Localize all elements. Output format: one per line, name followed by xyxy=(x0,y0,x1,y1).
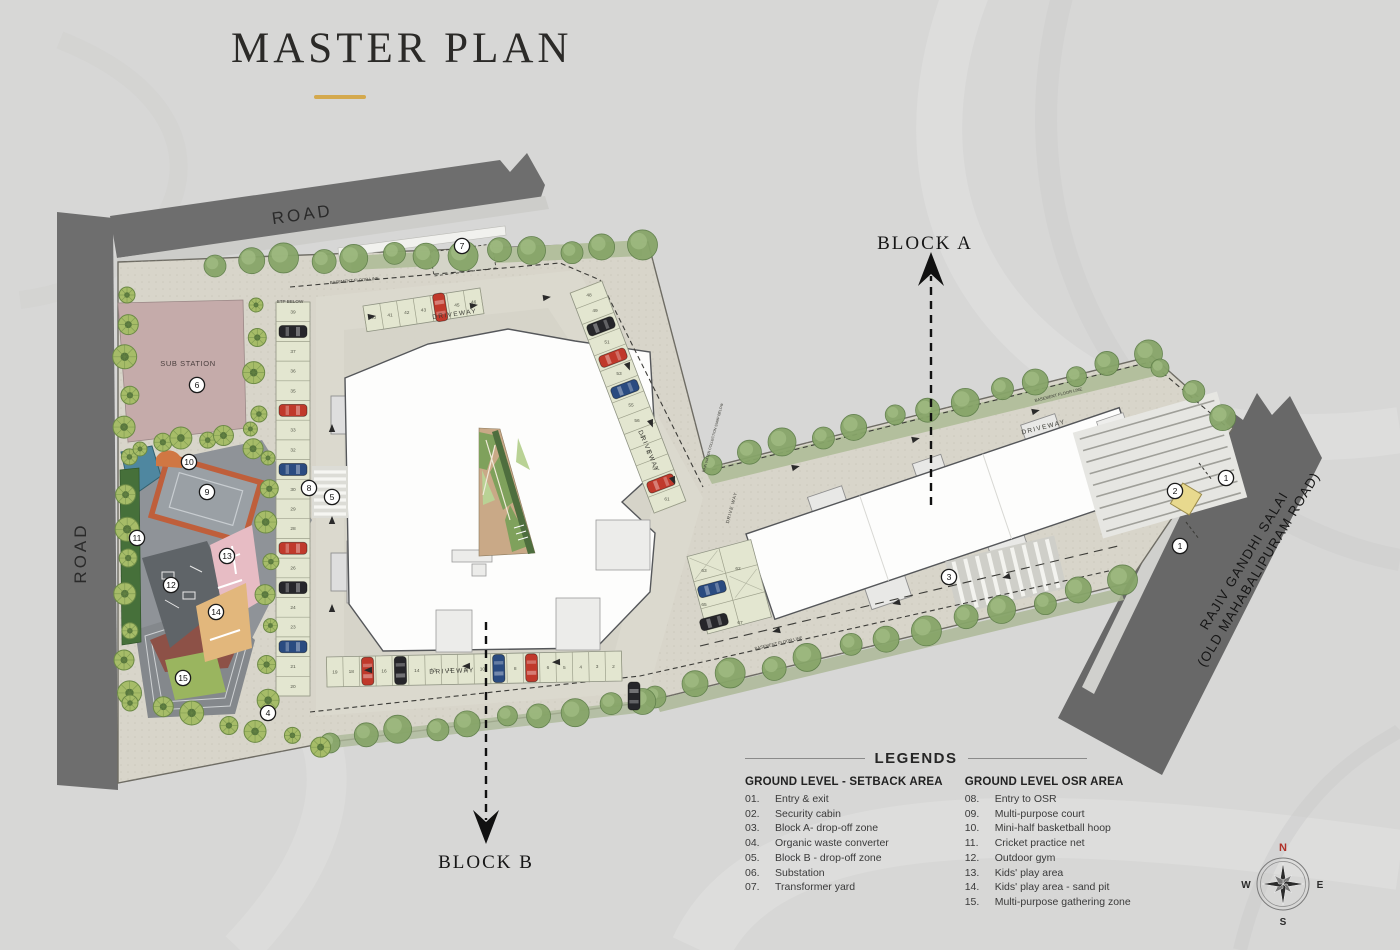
parking-stall-number: 3 xyxy=(596,664,599,670)
plan-marker-number: 1 xyxy=(1178,541,1183,551)
parked-car xyxy=(279,582,307,594)
legend-item-number: 02. xyxy=(745,807,769,822)
legend-item-label: Block A- drop-off zone xyxy=(775,821,943,836)
plan-marker: 7 xyxy=(454,238,469,253)
master-plan-page: ROAD ROAD RAJIV GANDHI SALAI (OLD MAHABA… xyxy=(0,0,1400,950)
legend-item-number: 11. xyxy=(965,836,989,851)
plan-marker: 3 xyxy=(941,569,956,584)
compass-north: N xyxy=(1279,842,1287,854)
plan-marker: 10 xyxy=(181,454,196,469)
block-b-label: BLOCK B xyxy=(438,852,534,873)
parked-car xyxy=(279,542,307,554)
parking-stall-number: 67 xyxy=(737,620,743,626)
plan-marker: 1 xyxy=(1218,470,1233,485)
title-underline xyxy=(314,95,366,99)
legend-item: 14.Kids' play area - sand pit xyxy=(965,880,1131,895)
parking-stall-number: 42 xyxy=(404,310,410,316)
plan-marker-number: 15 xyxy=(178,673,188,683)
page-title: MASTER PLAN xyxy=(231,24,572,73)
legend-column-osr: GROUND LEVEL OSR AREA 08.Entry to OSR09.… xyxy=(965,776,1131,910)
parked-car xyxy=(394,656,407,684)
plan-marker: 5 xyxy=(324,489,339,504)
substation-label: SUB STATION xyxy=(160,359,216,368)
parking-stall-number: 5 xyxy=(563,665,566,671)
legend-columns: GROUND LEVEL - SETBACK AREA 01.Entry & e… xyxy=(745,776,1087,910)
plan-marker: 8 xyxy=(301,480,316,495)
parking-stall-number: 33 xyxy=(290,428,296,434)
legend-item-label: Substation xyxy=(775,866,943,881)
legend-item-number: 09. xyxy=(965,807,989,822)
plan-marker: 14 xyxy=(208,604,223,619)
parked-car xyxy=(279,404,307,416)
legend-item: 08.Entry to OSR xyxy=(965,792,1131,807)
plan-marker-number: 10 xyxy=(184,457,194,467)
parking-stall-number: 49 xyxy=(592,308,598,314)
plan-marker: 4 xyxy=(260,705,275,720)
parking-stall-number: 6 xyxy=(547,665,550,671)
legend-item-number: 07. xyxy=(745,880,769,895)
legend-item-number: 03. xyxy=(745,821,769,836)
legend-item-label: Outdoor gym xyxy=(995,851,1131,866)
plan-marker-number: 13 xyxy=(222,551,232,561)
plan-marker-number: 9 xyxy=(205,487,210,497)
parking-stall-number: 45 xyxy=(454,302,460,308)
parking-stall-number: 14 xyxy=(414,668,420,674)
parking-stall-number: 32 xyxy=(290,447,296,453)
parking-stall-number: 51 xyxy=(604,340,610,346)
legend-item: 12.Outdoor gym xyxy=(965,851,1131,866)
left-road xyxy=(57,212,118,790)
legend-rule-right xyxy=(968,758,1088,759)
parking-stall-number: 4 xyxy=(579,664,582,670)
parking-stall-number: 37 xyxy=(290,349,296,355)
plan-marker-number: 11 xyxy=(133,533,142,543)
legend-item-label: Cricket practice net xyxy=(995,836,1131,851)
legend-item-number: 04. xyxy=(745,836,769,851)
parking-stall-number: 26 xyxy=(290,566,296,572)
parking-stall-number: 36 xyxy=(290,369,296,375)
legend-item-number: 13. xyxy=(965,866,989,881)
legend-item: 03.Block A- drop-off zone xyxy=(745,821,943,836)
parking-stall-number: 24 xyxy=(290,605,296,611)
legend-item-number: 15. xyxy=(965,895,989,910)
plan-marker-number: 1 xyxy=(1224,473,1229,483)
parked-car xyxy=(628,682,640,710)
site-plan-drawing: ROAD ROAD RAJIV GANDHI SALAI (OLD MAHABA… xyxy=(0,0,1400,950)
plan-marker: 6 xyxy=(189,377,204,392)
parking-stall-number: 35 xyxy=(290,388,296,394)
legend-item-label: Multi-purpose court xyxy=(995,807,1131,822)
parked-car xyxy=(525,654,538,682)
parking-stall-number: 2 xyxy=(612,664,615,670)
left-road-label: ROAD xyxy=(71,522,90,583)
legend-title-row: LEGENDS xyxy=(745,750,1087,767)
plan-marker-number: 7 xyxy=(460,241,465,251)
legend-rule-left xyxy=(745,758,865,759)
legend-item-label: Block B - drop-off zone xyxy=(775,851,943,866)
legend-item-number: 12. xyxy=(965,851,989,866)
legend-item: 05.Block B - drop-off zone xyxy=(745,851,943,866)
legend-item-number: 10. xyxy=(965,821,989,836)
legend-item-label: Entry to OSR xyxy=(995,792,1131,807)
plan-marker-number: 14 xyxy=(211,607,221,617)
plan-marker: 9 xyxy=(199,484,214,499)
plan-marker: 13 xyxy=(219,548,234,563)
legend-title: LEGENDS xyxy=(875,750,958,767)
parking-stall-number: 8 xyxy=(514,666,517,672)
parking-stall-number: 65 xyxy=(701,602,707,608)
parking-stall-number: 29 xyxy=(290,506,296,512)
legend-item-number: 14. xyxy=(965,880,989,895)
legend-item: 13.Kids' play area xyxy=(965,866,1131,881)
parking-stall-number: 16 xyxy=(381,668,387,674)
parked-car xyxy=(492,654,505,682)
parking-stall-number: 53 xyxy=(616,371,622,377)
plan-marker: 12 xyxy=(163,577,178,592)
parking-stall-number: 55 xyxy=(628,402,634,408)
legend-item-label: Security cabin xyxy=(775,807,943,822)
legend-item-label: Transformer yard xyxy=(775,880,943,895)
legend-item: 09.Multi-purpose court xyxy=(965,807,1131,822)
plan-marker-number: 4 xyxy=(266,708,271,718)
legend-item: 11.Cricket practice net xyxy=(965,836,1131,851)
parking-stall-number: 48 xyxy=(586,292,592,298)
legend-header: GROUND LEVEL OSR AREA xyxy=(965,776,1131,788)
parking-stall-number: 43 xyxy=(421,307,427,313)
legend-item-number: 08. xyxy=(965,792,989,807)
legend-item-label: Multi-purpose gathering zone xyxy=(995,895,1131,910)
plan-marker: 15 xyxy=(175,670,190,685)
legend-item-label: Kids' play area - sand pit xyxy=(995,880,1131,895)
parking-stall-number: 61 xyxy=(664,497,670,503)
parked-car xyxy=(279,641,307,653)
compass-east: E xyxy=(1317,880,1324,891)
plan-marker-number: 2 xyxy=(1173,486,1178,496)
legend-item: 06.Substation xyxy=(745,866,943,881)
legend-column-setback: GROUND LEVEL - SETBACK AREA 01.Entry & e… xyxy=(745,776,943,910)
parking-stall-number: 30 xyxy=(290,487,296,493)
legend-item-number: 05. xyxy=(745,851,769,866)
legend-item-label: Organic waste converter xyxy=(775,836,943,851)
parking-stall-number: 28 xyxy=(290,526,296,532)
plan-marker-number: 8 xyxy=(307,483,312,493)
parking-stall-number: 23 xyxy=(290,625,296,631)
block-a-label: BLOCK A xyxy=(877,233,973,254)
parking-stall-number: 41 xyxy=(387,313,393,319)
legend-item: 01.Entry & exit xyxy=(745,792,943,807)
plan-marker-number: 12 xyxy=(166,580,176,590)
compass-south: S xyxy=(1280,917,1287,928)
compass-west: W xyxy=(1241,880,1251,891)
parking-stall-number: 20 xyxy=(290,684,296,690)
legend-item: 15.Multi-purpose gathering zone xyxy=(965,895,1131,910)
plan-marker: 2 xyxy=(1167,483,1182,498)
parked-car xyxy=(279,463,307,475)
parking-stall-number: 10 xyxy=(480,666,486,672)
parking-stall-number: 56 xyxy=(634,418,640,424)
plan-marker-number: 3 xyxy=(947,572,952,582)
parking-stall-number: 62 xyxy=(735,566,741,572)
legend-item: 02.Security cabin xyxy=(745,807,943,822)
parking-stall-number: 63 xyxy=(701,568,707,574)
legend-item: 07.Transformer yard xyxy=(745,880,943,895)
parked-car xyxy=(279,326,307,338)
legend-header: GROUND LEVEL - SETBACK AREA xyxy=(745,776,943,788)
legend-item-label: Kids' play area xyxy=(995,866,1131,881)
parking-stall-number: 21 xyxy=(290,664,296,670)
plan-marker-number: 6 xyxy=(195,380,200,390)
legend-item-number: 06. xyxy=(745,866,769,881)
plan-marker-number: 5 xyxy=(330,492,335,502)
plan-marker: 1 xyxy=(1172,538,1187,553)
legend-item-label: Mini-half basketball hoop xyxy=(995,821,1131,836)
legend-item-number: 01. xyxy=(745,792,769,807)
legend-item: 04.Organic waste converter xyxy=(745,836,943,851)
parking-stall-number: 39 xyxy=(290,309,296,315)
legend-panel: LEGENDS GROUND LEVEL - SETBACK AREA 01.E… xyxy=(745,750,1087,910)
parking-stall-number: 19 xyxy=(332,669,338,675)
stp-below-label: STP BELOW xyxy=(277,299,304,304)
legend-item: 10.Mini-half basketball hoop xyxy=(965,821,1131,836)
legend-item-label: Entry & exit xyxy=(775,792,943,807)
plan-marker: 11 xyxy=(129,530,144,545)
parking-stall-number: 18 xyxy=(349,669,355,675)
